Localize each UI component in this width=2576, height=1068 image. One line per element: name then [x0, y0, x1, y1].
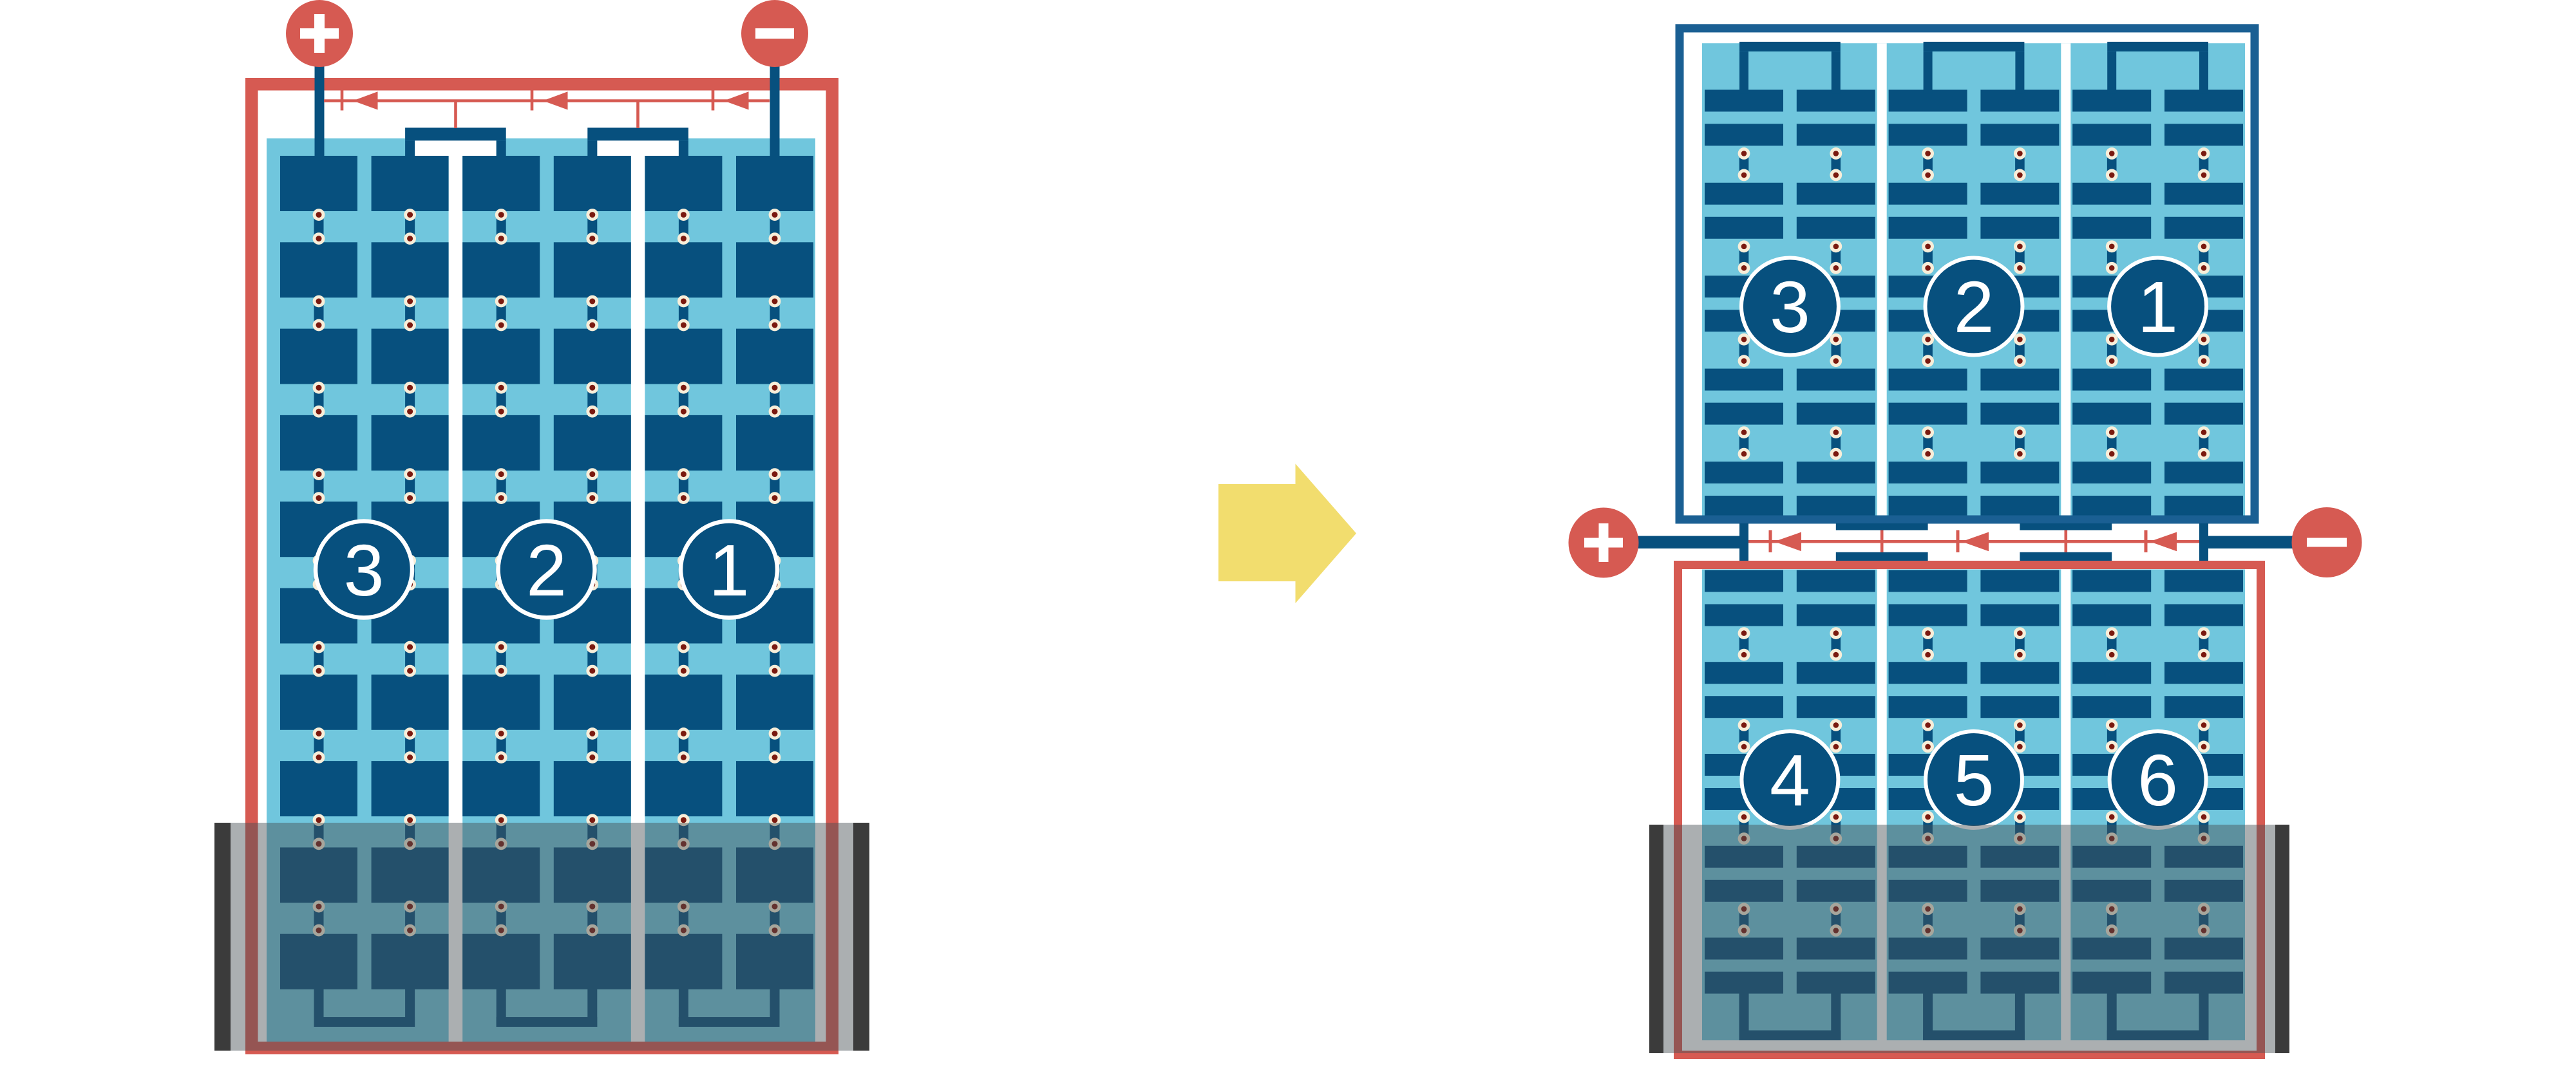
svg-text:1: 1: [709, 530, 750, 611]
svg-text:3: 3: [344, 530, 384, 611]
svg-text:3: 3: [1770, 267, 1810, 348]
svg-text:2: 2: [1954, 267, 1994, 348]
svg-text:4: 4: [1770, 740, 1810, 821]
svg-text:1: 1: [2137, 267, 2178, 348]
svg-text:2: 2: [526, 530, 567, 611]
svg-text:6: 6: [2137, 740, 2178, 821]
svg-text:5: 5: [1954, 740, 1994, 821]
